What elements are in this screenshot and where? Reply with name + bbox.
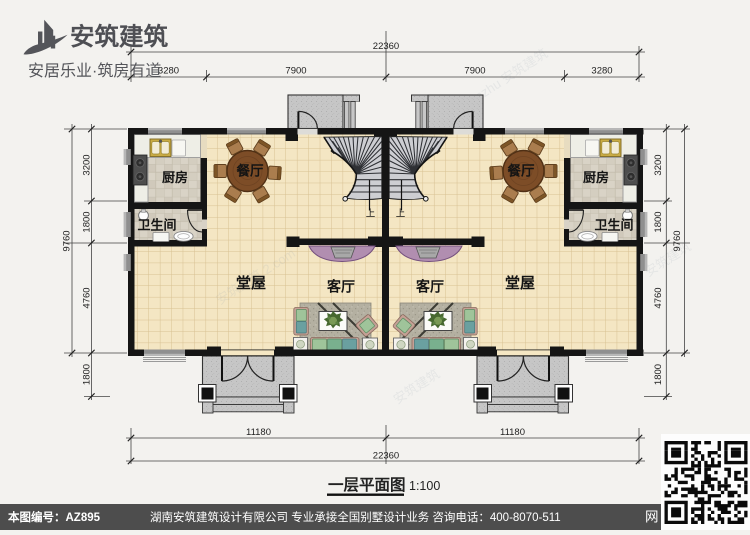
svg-text:湖南安筑建筑设计有限公司 专业承接全国别墅设计业务 咨询: 湖南安筑建筑设计有限公司 专业承接全国别墅设计业务 咨询电话：400-8070-…: [150, 510, 561, 524]
svg-text:1800: 1800: [82, 364, 93, 385]
svg-text:餐厅: 餐厅: [236, 163, 264, 179]
svg-text:3200: 3200: [653, 154, 664, 175]
svg-text:3200: 3200: [82, 154, 93, 175]
svg-text:9760: 9760: [672, 230, 683, 251]
svg-text:上: 上: [396, 209, 406, 220]
svg-text:9760: 9760: [62, 230, 73, 251]
svg-text:安居乐业·筑房有道: 安居乐业·筑房有道: [28, 62, 161, 80]
svg-text:网: 网: [645, 510, 659, 525]
svg-text:一层平面图: 一层平面图: [328, 476, 406, 494]
svg-text:客厅: 客厅: [415, 279, 444, 295]
svg-text:1800: 1800: [653, 211, 664, 232]
svg-text:4760: 4760: [653, 287, 664, 308]
svg-text:1:100: 1:100: [409, 479, 440, 493]
svg-text:安筑建筑: 安筑建筑: [70, 22, 168, 51]
svg-text:堂屋: 堂屋: [505, 274, 535, 292]
svg-text:堂屋: 堂屋: [236, 274, 266, 292]
svg-text:11180: 11180: [500, 427, 525, 438]
svg-text:1800: 1800: [82, 211, 93, 232]
svg-text:卫生间: 卫生间: [137, 218, 176, 233]
svg-text:1800: 1800: [653, 364, 664, 385]
svg-text:餐厅: 餐厅: [507, 163, 536, 179]
svg-text:厨房: 厨房: [583, 170, 609, 185]
svg-text:3280: 3280: [591, 66, 612, 77]
svg-text:客厅: 客厅: [326, 279, 355, 295]
svg-text:11180: 11180: [246, 427, 271, 438]
svg-text:22360: 22360: [373, 451, 399, 462]
svg-text:厨房: 厨房: [162, 170, 188, 185]
svg-text:4760: 4760: [82, 287, 93, 308]
svg-text:上: 上: [366, 209, 376, 220]
svg-text:7900: 7900: [285, 66, 306, 77]
svg-text:本图编号：AZ895: 本图编号：AZ895: [8, 510, 101, 524]
svg-text:22360: 22360: [373, 41, 399, 52]
svg-text:卫生间: 卫生间: [594, 218, 633, 233]
svg-text:7900: 7900: [464, 66, 485, 77]
